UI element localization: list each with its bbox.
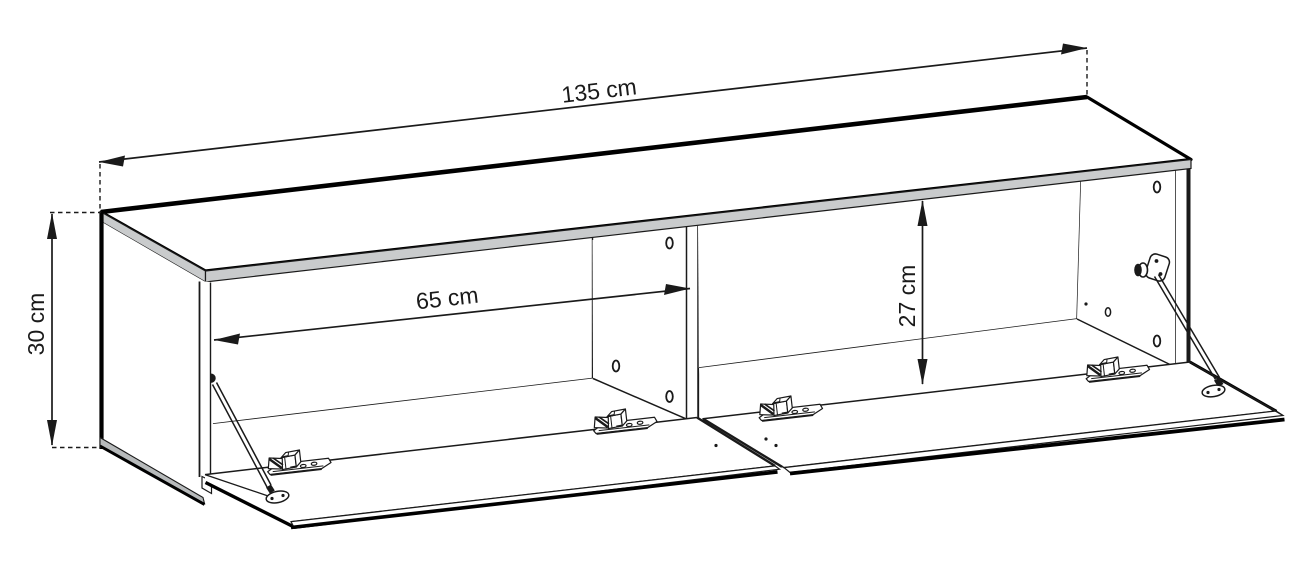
- svg-text:27 cm: 27 cm: [894, 265, 920, 328]
- svg-text:30 cm: 30 cm: [23, 293, 49, 356]
